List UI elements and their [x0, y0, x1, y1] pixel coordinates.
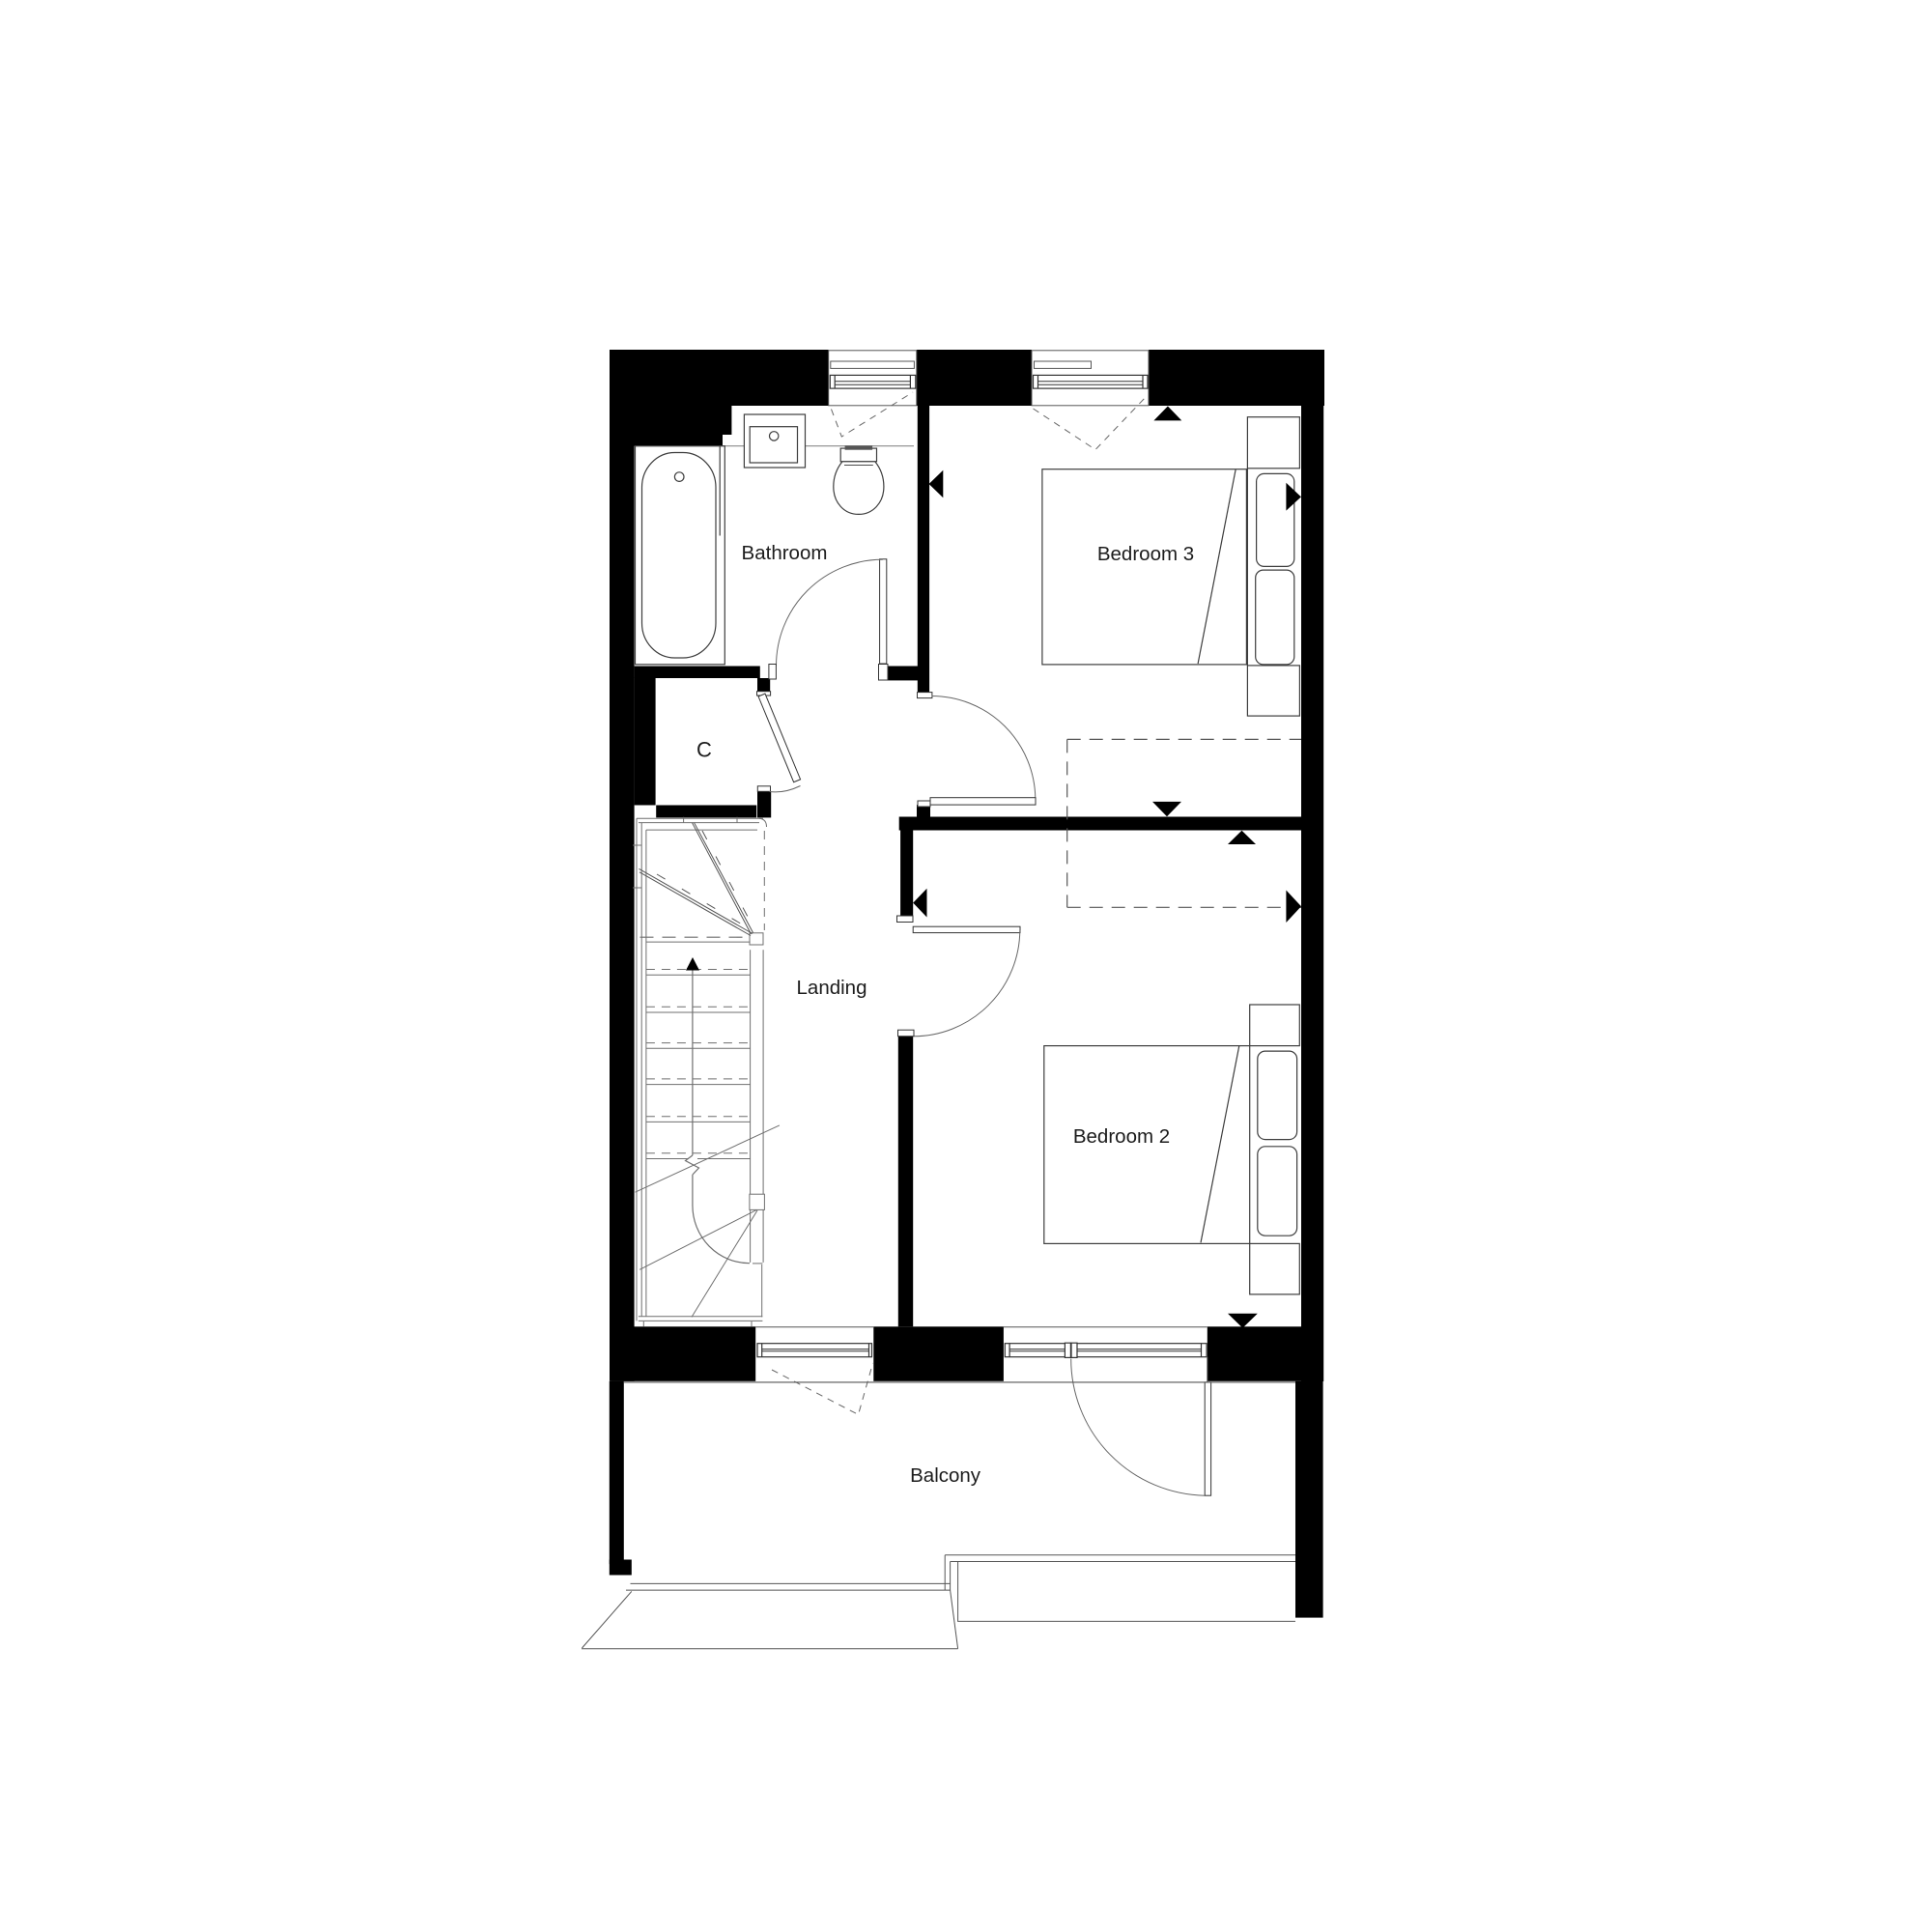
svg-text:Bedroom 2: Bedroom 2 [1073, 1125, 1170, 1148]
svg-text:C: C [696, 738, 712, 762]
svg-text:Bedroom 3: Bedroom 3 [1097, 543, 1194, 565]
svg-text:Bathroom: Bathroom [742, 542, 828, 564]
svg-text:Balcony: Balcony [910, 1464, 981, 1487]
svg-text:Landing: Landing [797, 977, 867, 999]
